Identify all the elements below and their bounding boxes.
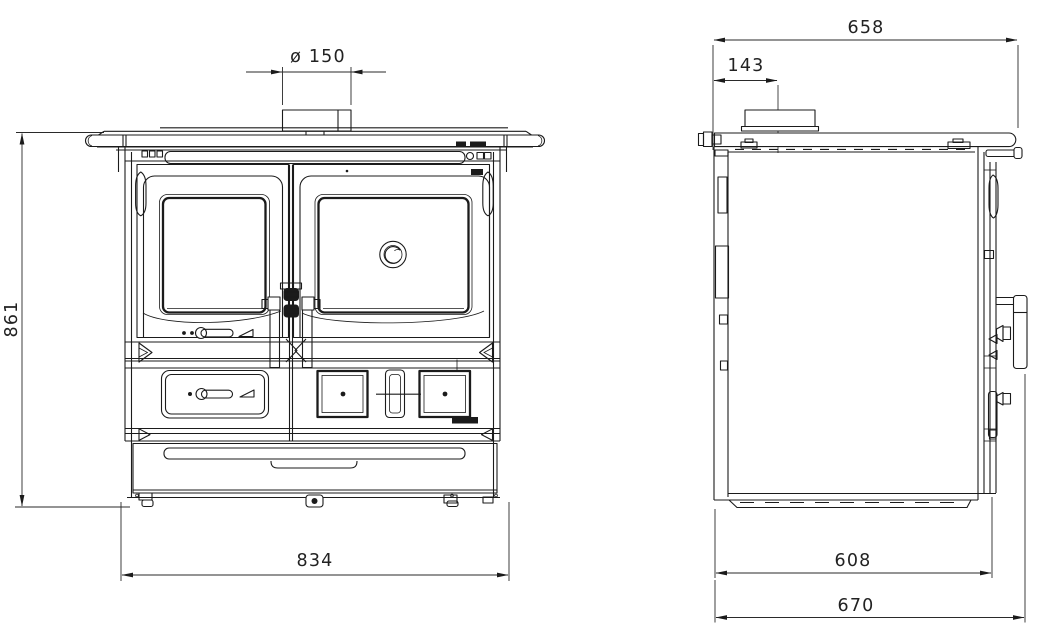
foot-right [447,501,458,507]
latch-knob-lower [284,305,300,318]
front-view: 861 ø 150 834 [2,47,545,581]
latch-knob-upper [284,288,300,301]
door-handles [262,165,320,442]
handle-bar-right-top [302,297,314,310]
flue-pipe-side [742,110,819,131]
drawing-canvas: 861 ø 150 834 [0,0,1053,637]
latch-knob-side-lower [997,393,1011,406]
control-strip [116,150,506,175]
door-hinge-strap [483,172,493,216]
lower-right-panel [318,360,479,424]
handle-bar-side [1014,296,1028,369]
dimension-height: 861 [2,133,130,508]
foot-left [142,500,153,507]
ash-drawer-panel [162,371,269,419]
dim-height-label: 861 [2,300,22,337]
latch-knob-side-upper [997,326,1011,342]
drawer-pull [271,461,357,468]
dim-flue-label: ø 150 [290,47,346,67]
ash-air-slider [188,389,254,400]
side-front-hardware [985,175,1028,439]
dimension-body-depth: 608 [715,497,992,578]
lid-hinge-front [456,142,486,148]
firebox-door [136,165,289,339]
dim-overall-depth-label: 670 [837,596,874,616]
rating-label [452,417,478,424]
air-slider [182,328,253,339]
side-view: 658 143 608 670 [699,18,1028,623]
dim-body-depth-label: 608 [834,551,871,571]
plinth-and-feet [127,493,500,507]
top-plate-side [699,132,1023,159]
body-side [714,147,996,500]
dim-width-label: 834 [296,551,333,571]
dimension-width: 834 [121,502,509,581]
plinth-side [729,500,971,508]
stove-technical-drawing: 861 ø 150 834 [0,0,1053,637]
dim-flue-offset-label: 143 [727,56,764,76]
rear-panel-details [715,150,729,370]
towel-rail-side [986,148,1022,159]
oven-thermometer [380,241,406,267]
dim-top-depth-label: 658 [847,18,884,38]
oven-door [294,165,494,338]
base-side [714,494,996,508]
bottom-drawer [133,444,497,494]
dimension-flue-diameter: ø 150 [246,47,386,105]
handle-bar-left-top [268,297,280,310]
firebox-window-frame [160,195,270,315]
firebox-window [163,198,266,313]
griddle-slot [165,152,465,164]
